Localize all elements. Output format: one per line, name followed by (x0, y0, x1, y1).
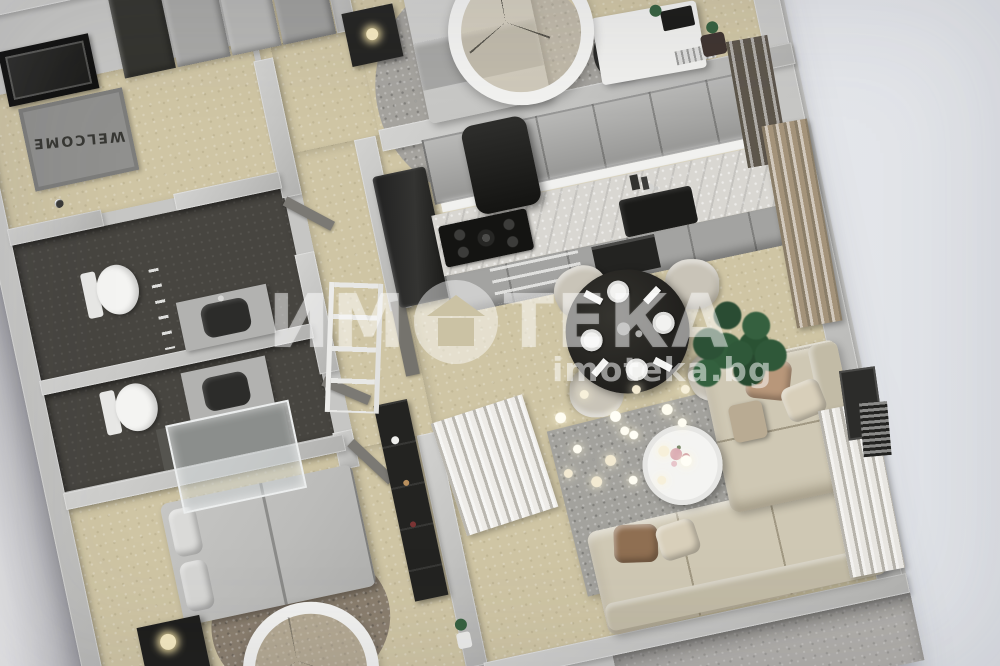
house-body (438, 318, 474, 346)
ring-light-spokes-1 (450, 0, 561, 78)
welcome-mat-label: WELCOME (31, 127, 126, 151)
watermark-house-icon (414, 280, 498, 364)
floor-plan-photo: WELCOME (0, 0, 1000, 666)
wall-art-frame-2 (859, 401, 892, 457)
house-roof (427, 295, 485, 316)
watermark-brand-prefix: ИМ (268, 279, 408, 365)
watermark-url: imoteka.bg (552, 350, 773, 389)
small-plant-pot (456, 631, 473, 650)
sofa-pillow-3 (613, 524, 658, 564)
